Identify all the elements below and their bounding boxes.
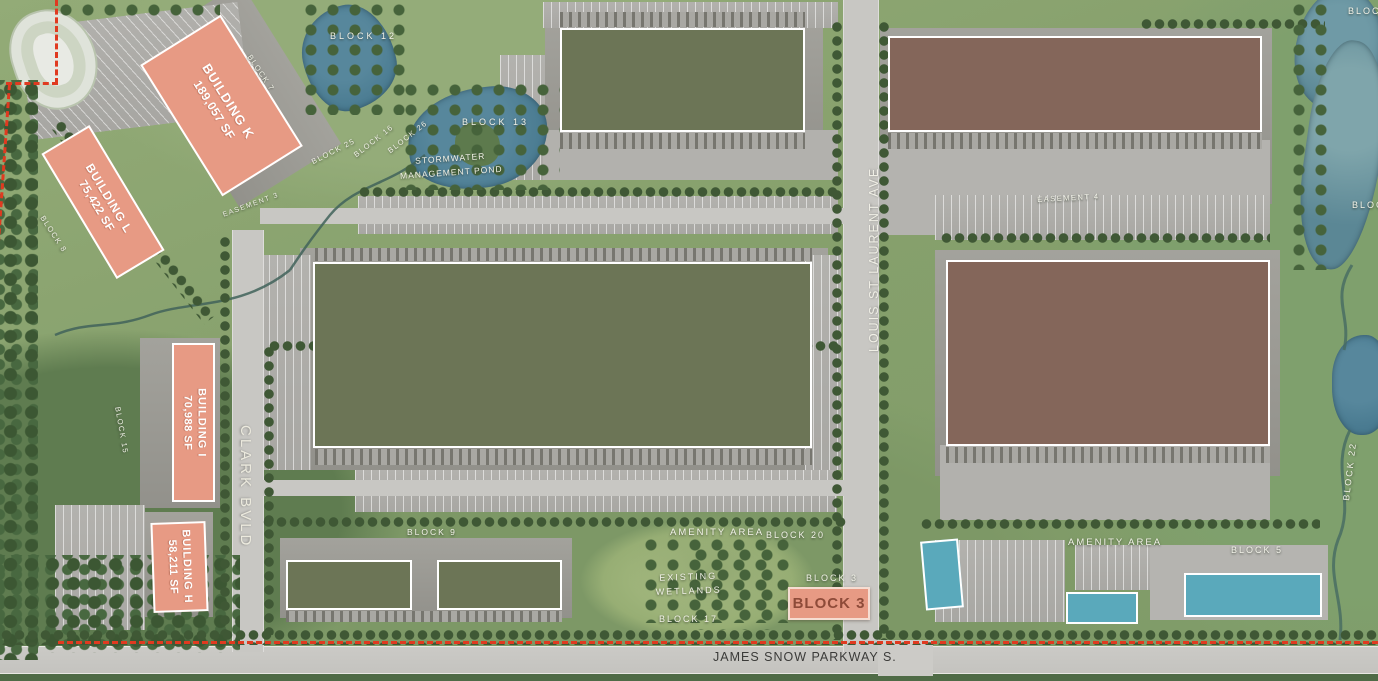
building-olive-south-1[interactable]: [286, 560, 412, 610]
tree-row-clark-west: [219, 235, 231, 635]
label-block-13: BLOCK 13: [462, 117, 529, 127]
label-block-12: BLOCK 12: [330, 31, 397, 41]
label-wetlands-line1: EXISTING: [659, 571, 717, 583]
building-i[interactable]: BUILDING I 70,988 SF: [172, 343, 215, 502]
tree-row-clark-east: [263, 345, 275, 635]
building-i-name: BUILDING I: [194, 388, 208, 457]
label-block-edge-top-right: BLOCK: [1348, 6, 1378, 16]
building-teal-block5[interactable]: [1184, 573, 1322, 617]
building-brown-right-center[interactable]: [946, 260, 1270, 446]
building-olive-center[interactable]: [313, 262, 812, 448]
label-block-9: BLOCK 9: [407, 527, 457, 537]
building-i-area: 70,988 SF: [180, 388, 194, 457]
tree-cluster-river: [1288, 0, 1334, 270]
building-h-label: BUILDING H 58,211 SF: [164, 529, 194, 604]
building-brown-top-right[interactable]: [888, 36, 1262, 132]
label-block-20: BLOCK 20: [766, 530, 825, 540]
label-block-17: BLOCK 17: [659, 614, 718, 624]
building-i-label: BUILDING I 70,988 SF: [180, 388, 208, 457]
tree-row: [920, 518, 1320, 531]
tree-row-louis-west: [831, 20, 843, 640]
tree-cluster: [300, 0, 410, 115]
boundary-line-top-left-horizontal: [6, 82, 58, 85]
label-block-3-area: BLOCK 3: [806, 573, 858, 583]
block-3-badge[interactable]: BLOCK 3: [788, 587, 870, 620]
label-existing-wetlands: EXISTING WETLANDS: [652, 568, 725, 599]
building-teal-small[interactable]: [920, 538, 964, 610]
label-block-5: BLOCK 5: [1231, 545, 1283, 555]
label-stormwater-line1: STORMWATER: [415, 151, 486, 166]
label-wetlands-line2: WETLANDS: [656, 585, 722, 597]
building-h-name: BUILDING H: [178, 529, 194, 604]
tree-row-top-left: [55, 0, 220, 16]
site-plan-map: BUILDING K 189,057 SF BUILDING L 75,422 …: [0, 0, 1378, 681]
label-amenity-area-west: AMENITY AREA: [670, 527, 764, 538]
label-james-snow-parkway: JAMES SNOW PARKWAY S.: [713, 650, 897, 664]
label-louis-st-laurent-ave: LOUIS ST LAURENT AVE: [867, 167, 881, 352]
boundary-line-top-left-vertical: [55, 0, 58, 84]
label-amenity-area-east: AMENITY AREA: [1068, 537, 1162, 548]
label-clark-bvld: CLARK BVLD: [237, 425, 254, 548]
building-teal-mid[interactable]: [1066, 592, 1138, 624]
boundary-line-south: [58, 641, 1378, 644]
building-h[interactable]: BUILDING H 58,211 SF: [150, 521, 208, 613]
tree-row: [940, 232, 1270, 244]
building-olive-top-center[interactable]: [560, 28, 805, 132]
label-block-edge-right: BLOCK: [1352, 200, 1378, 210]
building-olive-south-2[interactable]: [437, 560, 562, 610]
